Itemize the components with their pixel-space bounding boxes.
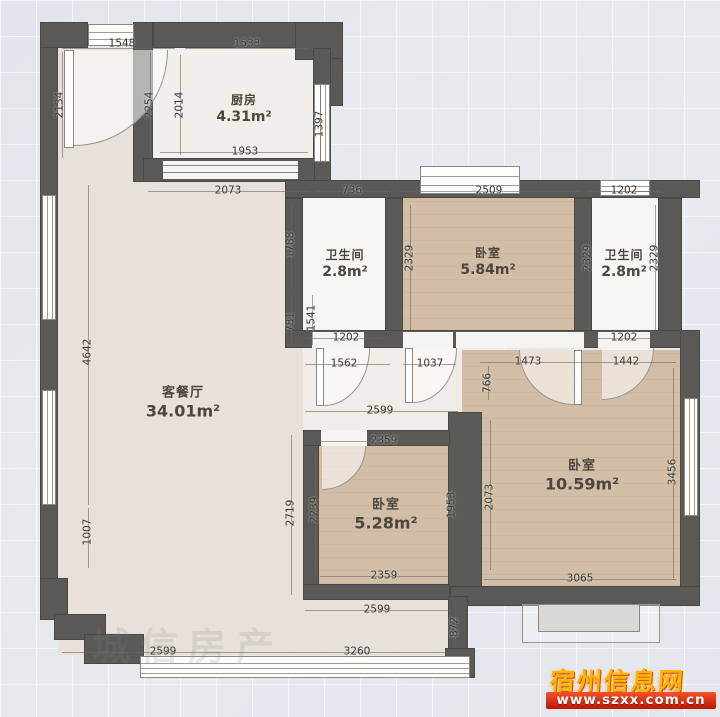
room-label-bedroom-right: 卧室 10.59m² [545,455,619,494]
room-area-bathroom-right: 2.8m² [601,264,647,280]
opening-bedroom-bottom-door [321,430,367,446]
opening-kitchen-slider [163,161,298,179]
wall-right-upper [658,198,682,348]
dim-2509: 2509 [476,186,503,197]
room-area-bedroom-top: 5.84m² [460,262,515,278]
room-name-living: 客餐厅 [146,382,220,401]
dim-1202-bath2-top: 1202 [611,186,638,197]
room-area-bedroom-right: 10.59m² [545,475,619,494]
watermark-site-url: www.szxx.com.cn [546,692,716,709]
floor-plan-canvas: 1548 1533 2134 2254 2014 1397 1953 2073 … [0,0,720,717]
room-name-kitchen: 厨房 [216,91,271,108]
dim-2329-b: 2329 [583,245,594,272]
wall-bedroom-bath2-divider [574,198,592,348]
entry-door-leaf [64,50,74,148]
watermark-agency: 城信房产 [92,616,284,671]
opening-hall-junction [456,332,584,348]
dim-1037: 1037 [417,359,444,370]
wall-bedroom-right-bottom [450,586,700,606]
room-area-living: 34.01m² [146,402,220,421]
dim-2073-v: 2073 [485,484,496,511]
room-label-bedroom-bottom: 卧室 5.28m² [354,494,417,533]
room-name-bathroom-right: 卫生间 [601,246,647,263]
window-left-upper [42,195,56,320]
room-label-living: 客餐厅 34.01m² [146,382,220,421]
dim-2719: 2719 [286,500,297,527]
dim-2599-hall: 2599 [367,406,394,417]
dim-1007: 1007 [83,519,94,546]
dim-1953-kitchen: 1953 [232,147,259,158]
bay-window-bedroom-right [538,604,640,632]
opening-bedroom-top-door [403,332,453,348]
room-label-bathroom-middle: 卫生间 2.8m² [322,246,368,280]
dim-1953-bedroom: 1953 [447,492,458,519]
dim-3260: 3260 [344,647,371,658]
room-name-bedroom-right: 卧室 [545,455,619,474]
room-label-kitchen: 厨房 4.31m² [216,91,271,125]
wall-bedroom-bottom-bottom [303,584,450,600]
room-label-bedroom-top: 卧室 5.84m² [460,244,515,278]
dim-4642: 4642 [83,339,94,366]
dim-2014: 2014 [175,92,186,119]
dim-736: 736 [342,186,362,197]
dim-781: 781 [286,312,297,332]
dim-2134: 2134 [55,92,66,119]
bedroom-top-door-leaf [405,348,413,403]
dim-1548: 1548 [109,39,136,50]
dim-1541: 1541 [307,305,318,332]
room-name-bedroom-top: 卧室 [460,244,515,261]
room-label-bathroom-right: 卫生间 2.8m² [601,246,647,280]
bay-window-bedroom-top [420,166,520,194]
window-left-lower [42,390,56,505]
dim-2599-bedroom: 2599 [364,605,391,616]
dim-1442: 1442 [613,357,640,368]
wall-bath-bedroom-divider [385,198,403,348]
dim-1202-bath1-bottom: 1202 [333,333,360,344]
dim-3456: 3456 [668,459,679,486]
dim-1533: 1533 [234,39,261,50]
dim-2329-c: 2329 [650,245,661,272]
dim-1202-bath2-bottom: 1202 [611,333,638,344]
dim-2359-bottom: 2359 [371,571,398,582]
room-area-kitchen: 4.31m² [216,109,271,125]
dim-872: 872 [450,617,461,637]
dim-3065: 3065 [567,574,594,585]
dim-1473: 1473 [515,357,542,368]
dim-1562: 1562 [331,359,358,370]
dim-2329-a: 2329 [405,245,416,272]
dim-2073: 2073 [215,186,242,197]
wall-top-left [40,22,88,48]
bathroom-middle-door-leaf [316,348,324,406]
window-right-wall [684,398,698,516]
bedroom-right-door-leaf [574,350,582,405]
dim-2254: 2254 [145,92,156,119]
room-name-bedroom-bottom: 卧室 [354,494,417,513]
room-name-bathroom-middle: 卫生间 [322,246,368,263]
room-area-bathroom-middle: 2.8m² [322,264,368,280]
dim-2239: 2239 [310,497,321,524]
dim-1397: 1397 [315,111,326,138]
dim-766: 766 [483,373,494,393]
room-area-bedroom-bottom: 5.28m² [354,514,417,533]
dim-2359-top: 2359 [371,436,398,447]
dim-1788: 1788 [286,232,297,259]
